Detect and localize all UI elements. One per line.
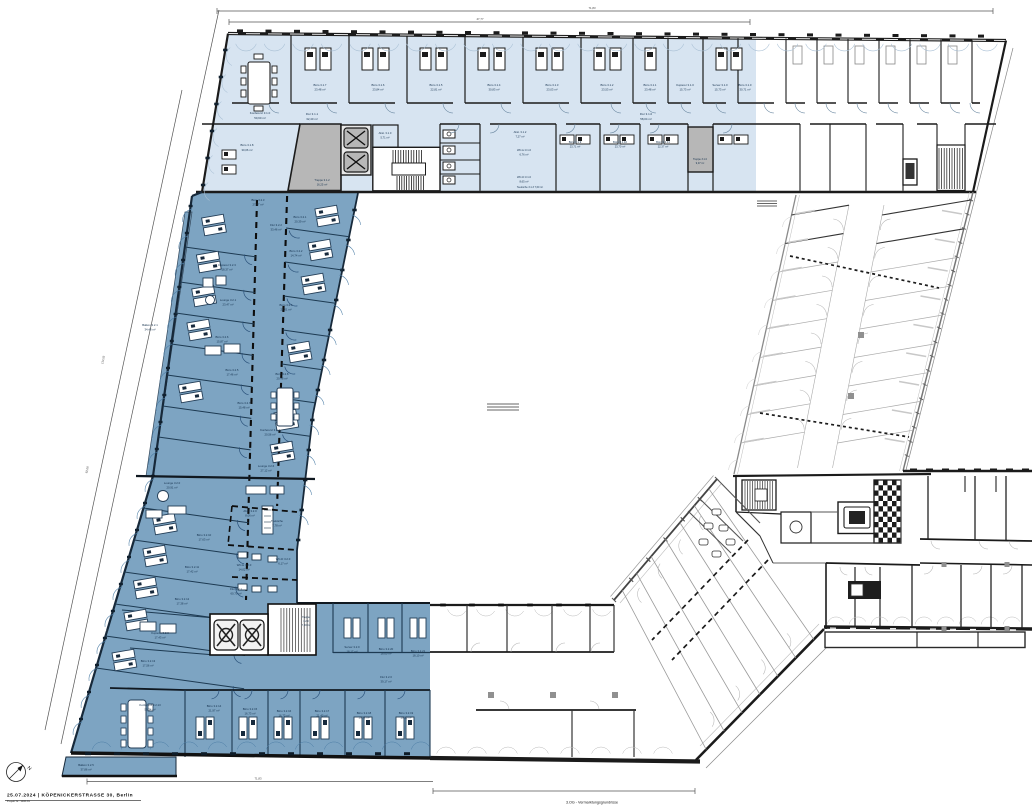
svg-text:Büro 3.2.17: Büro 3.2.17 bbox=[315, 709, 330, 713]
svg-text:23,84 m²: 23,84 m² bbox=[372, 88, 383, 92]
svg-text:5,71 m²: 5,71 m² bbox=[380, 136, 389, 140]
svg-text:27,12 m²: 27,12 m² bbox=[260, 469, 271, 473]
svg-text:Büro 3.1.1: Büro 3.1.1 bbox=[644, 83, 657, 87]
svg-text:17,38 m²: 17,38 m² bbox=[176, 602, 187, 606]
svg-text:23,48 m²: 23,48 m² bbox=[314, 88, 325, 92]
svg-text:Treppe: Treppe bbox=[302, 616, 310, 619]
svg-text:30,71 m²: 30,71 m² bbox=[739, 88, 750, 92]
svg-text:Büro 3.2.20: Büro 3.2.20 bbox=[379, 647, 394, 651]
svg-text:Büro 3.2.12: Büro 3.2.12 bbox=[175, 597, 190, 601]
svg-text:6,17 m²: 6,17 m² bbox=[278, 562, 288, 566]
svg-text:16,25 m²: 16,25 m² bbox=[317, 183, 328, 187]
svg-text:Büro 3.1.11: Büro 3.1.11 bbox=[656, 140, 670, 144]
svg-text:15,73 m²: 15,73 m² bbox=[679, 88, 690, 92]
svg-text:14,74 m²: 14,74 m² bbox=[290, 254, 301, 258]
svg-text:71,83: 71,83 bbox=[589, 6, 596, 10]
svg-text:Büro 3.2.4: Büro 3.2.4 bbox=[280, 303, 293, 307]
svg-text:Konferenz 3.2.2: Konferenz 3.2.2 bbox=[260, 428, 280, 432]
svg-text:22,37 m²: 22,37 m² bbox=[658, 145, 669, 149]
svg-text:32,40 m²: 32,40 m² bbox=[306, 117, 317, 121]
svg-text:WC-D 3.1.0: WC-D 3.1.0 bbox=[517, 175, 532, 179]
svg-text:20,39 m²: 20,39 m² bbox=[294, 220, 305, 224]
svg-text:16,73 m²: 16,73 m² bbox=[358, 716, 369, 720]
svg-text:Büro 3.2.11: Büro 3.2.11 bbox=[185, 565, 200, 569]
svg-text:WC-H 3.2.0: WC-H 3.2.0 bbox=[237, 563, 252, 567]
svg-text:37,86 m²: 37,86 m² bbox=[80, 768, 91, 772]
svg-text:Büro 3.2.7: Büro 3.2.7 bbox=[238, 401, 251, 405]
svg-text:15,48 m²: 15,48 m² bbox=[238, 406, 249, 410]
svg-text:Büro 3.2.16: Büro 3.2.16 bbox=[277, 709, 292, 713]
svg-text:Konferenz 3.2.13: Konferenz 3.2.13 bbox=[139, 703, 161, 707]
svg-text:17,46 m²: 17,46 m² bbox=[226, 373, 237, 377]
svg-text:3.OG - Vermarktungsgrundrisse: 3.OG - Vermarktungsgrundrisse bbox=[566, 801, 618, 805]
svg-text:23,71 m²: 23,71 m² bbox=[570, 145, 581, 149]
svg-text:16,73 m²: 16,73 m² bbox=[244, 712, 255, 716]
svg-text:18,17 m²: 18,17 m² bbox=[346, 650, 357, 654]
svg-text:6,76 m²: 6,76 m² bbox=[519, 153, 528, 157]
svg-text:Büro 3.1.10: Büro 3.1.10 bbox=[613, 140, 627, 144]
svg-text:7,00 m²: 7,00 m² bbox=[302, 624, 311, 627]
svg-text:20,48 m²: 20,48 m² bbox=[276, 377, 287, 381]
svg-text:Büro 3.2.1: Büro 3.2.1 bbox=[294, 215, 307, 219]
svg-text:23,48 m²: 23,48 m² bbox=[644, 88, 655, 92]
svg-text:Büro 3.2.18: Büro 3.2.18 bbox=[357, 711, 372, 715]
svg-text:21,97 m²: 21,97 m² bbox=[208, 709, 219, 713]
svg-text:Flur 3.2.0: Flur 3.2.0 bbox=[380, 675, 392, 679]
svg-text:Server 3.2.0: Server 3.2.0 bbox=[344, 645, 360, 649]
svg-text:7,27 m²: 7,27 m² bbox=[515, 135, 524, 139]
svg-text:Abst. 3.1.2: Abst. 3.1.2 bbox=[514, 130, 527, 134]
svg-text:17,56 m²: 17,56 m² bbox=[142, 664, 153, 668]
svg-text:Konferenz 3.1.0: Konferenz 3.1.0 bbox=[250, 111, 271, 115]
svg-text:Büro 3.2.5: Büro 3.2.5 bbox=[226, 368, 239, 372]
svg-text:17,63 m²: 17,63 m² bbox=[198, 538, 209, 542]
svg-text:33,46 m²: 33,46 m² bbox=[270, 228, 281, 232]
svg-text:50,60 m²: 50,60 m² bbox=[254, 116, 265, 120]
svg-text:Teeküche: Teeküche bbox=[271, 519, 283, 523]
svg-text:Treppe 3.1.2: Treppe 3.1.2 bbox=[314, 178, 330, 182]
svg-text:71,83: 71,83 bbox=[255, 777, 262, 781]
svg-text:Büro 3.1.3: Büro 3.1.3 bbox=[546, 83, 559, 87]
svg-text:Lounge 3.2.0: Lounge 3.2.0 bbox=[164, 481, 181, 485]
svg-text:Treppe 3.1.0: Treppe 3.1.0 bbox=[693, 158, 708, 161]
svg-text:25.07.2024 | KÖPENICKERSTRASSE: 25.07.2024 | KÖPENICKERSTRASSE 30, Berli… bbox=[7, 792, 133, 799]
svg-text:Server 3.1.0: Server 3.1.0 bbox=[712, 83, 728, 87]
svg-text:Büro 3.2.10: Büro 3.2.10 bbox=[197, 533, 212, 537]
svg-text:Projekt Nr.: 1180-01: Projekt Nr.: 1180-01 bbox=[7, 799, 30, 803]
svg-text:Lounge 3.2.1: Lounge 3.2.1 bbox=[220, 298, 237, 302]
svg-text:34,48 m²: 34,48 m² bbox=[144, 328, 155, 332]
svg-text:21,40 m²: 21,40 m² bbox=[316, 714, 327, 718]
svg-text:18,60 m²: 18,60 m² bbox=[380, 652, 391, 656]
svg-text:17,43 m²: 17,43 m² bbox=[154, 636, 165, 640]
svg-text:Büro 3.1.9: Büro 3.1.9 bbox=[569, 140, 582, 144]
svg-text:Abst. 3.1.0: Abst. 3.1.0 bbox=[379, 131, 392, 135]
svg-text:Büro 3.2.8: Büro 3.2.8 bbox=[276, 372, 289, 376]
svg-text:Teeküche 3.1.3 7,60 m²: Teeküche 3.1.3 7,60 m² bbox=[517, 186, 543, 189]
svg-text:9,07 m²: 9,07 m² bbox=[696, 162, 705, 165]
svg-text:22,81 m²: 22,81 m² bbox=[430, 88, 441, 92]
svg-text:Büro 3.2.6: Büro 3.2.6 bbox=[216, 335, 229, 339]
svg-text:Büro 3.2.13: Büro 3.2.13 bbox=[141, 659, 156, 663]
svg-text:30,83 m²: 30,83 m² bbox=[488, 88, 499, 92]
svg-text:23,03 m²: 23,03 m² bbox=[546, 88, 557, 92]
svg-text:56,34 m²: 56,34 m² bbox=[144, 708, 155, 712]
svg-text:Büro 3.2.21: Büro 3.2.21 bbox=[411, 649, 426, 653]
svg-text:47,77: 47,77 bbox=[477, 17, 484, 21]
svg-text:23,53 m²: 23,53 m² bbox=[601, 88, 612, 92]
svg-text:8,06 m²: 8,06 m² bbox=[245, 514, 255, 518]
svg-text:16,73 m²: 16,73 m² bbox=[278, 714, 289, 718]
svg-text:Büro 3.2.15: Büro 3.2.15 bbox=[243, 707, 258, 711]
svg-text:22,01 m²: 22,01 m² bbox=[280, 308, 291, 312]
svg-text:58,04 m²: 58,04 m² bbox=[640, 117, 651, 121]
svg-text:7,78 m²: 7,78 m² bbox=[272, 524, 282, 528]
svg-text:Flur 3.2.2: Flur 3.2.2 bbox=[270, 223, 282, 227]
svg-text:17,42 m²: 17,42 m² bbox=[186, 570, 197, 574]
svg-text:Flur 3.1.0: Flur 3.1.0 bbox=[640, 112, 653, 116]
svg-text:18,10 m²: 18,10 m² bbox=[412, 654, 423, 658]
svg-text:Büro 3.1.8: Büro 3.1.8 bbox=[241, 143, 254, 147]
svg-text:16,10 m²: 16,10 m² bbox=[400, 716, 411, 720]
svg-text:Büro 3.1.4: Büro 3.1.4 bbox=[488, 83, 501, 87]
svg-text:23,70 m²: 23,70 m² bbox=[615, 145, 626, 149]
svg-text:Büro 3.2.3: Büro 3.2.3 bbox=[252, 198, 265, 202]
svg-text:20,56 m²: 20,56 m² bbox=[264, 433, 275, 437]
svg-text:WC-D 3.2.0: WC-D 3.2.0 bbox=[276, 557, 291, 561]
svg-text:Büro 3.1.7: Büro 3.1.7 bbox=[314, 83, 327, 87]
svg-text:Balkon 3.2.1: Balkon 3.2.1 bbox=[142, 323, 158, 327]
svg-text:30,06 m²: 30,06 m² bbox=[241, 148, 252, 152]
svg-text:Büro 3.2.19: Büro 3.2.19 bbox=[399, 711, 414, 715]
svg-text:Flur 3.1.1: Flur 3.1.1 bbox=[306, 112, 319, 116]
svg-text:14,02 m²: 14,02 m² bbox=[238, 568, 249, 572]
svg-text:Kopierer 3.1.0: Kopierer 3.1.0 bbox=[676, 83, 694, 87]
svg-text:15,87 m²: 15,87 m² bbox=[216, 340, 227, 344]
svg-text:Büro 3.1.5: Büro 3.1.5 bbox=[430, 83, 443, 87]
svg-text:23,47 m²: 23,47 m² bbox=[222, 303, 233, 307]
svg-text:Kopierer 3.2.0: Kopierer 3.2.0 bbox=[151, 631, 169, 635]
svg-text:20,91 m²: 20,91 m² bbox=[166, 486, 177, 490]
svg-text:Büro 3.1.6: Büro 3.1.6 bbox=[372, 83, 385, 87]
svg-text:Flur 3.2.1: Flur 3.2.1 bbox=[230, 587, 242, 591]
svg-text:39,17 m²: 39,17 m² bbox=[380, 680, 391, 684]
svg-text:60,70 m²: 60,70 m² bbox=[230, 592, 241, 596]
svg-text:Lounge 3.2.6: Lounge 3.2.6 bbox=[258, 464, 275, 468]
svg-text:Balkon 3.2.5: Balkon 3.2.5 bbox=[78, 763, 94, 767]
svg-text:18,37 m²: 18,37 m² bbox=[221, 268, 232, 272]
svg-text:Abst. 3.2.0: Abst. 3.2.0 bbox=[243, 509, 257, 513]
svg-text:8,65 m²: 8,65 m² bbox=[519, 180, 528, 184]
svg-text:Büro 3.1.2: Büro 3.1.2 bbox=[601, 83, 614, 87]
svg-text:Kopierer 3.2.3: Kopierer 3.2.3 bbox=[218, 263, 236, 267]
svg-text:15,73 m²: 15,73 m² bbox=[714, 88, 725, 92]
svg-text:Büro 3.2.14: Büro 3.2.14 bbox=[207, 704, 222, 708]
svg-text:27,87 m²: 27,87 m² bbox=[252, 203, 263, 207]
svg-text:Büro 3.2.2: Büro 3.2.2 bbox=[290, 249, 303, 253]
svg-text:WC-H 3.1.0: WC-H 3.1.0 bbox=[517, 148, 532, 152]
svg-text:3.2.0: 3.2.0 bbox=[303, 620, 309, 623]
svg-text:Büro 3.1.0: Büro 3.1.0 bbox=[739, 83, 752, 87]
